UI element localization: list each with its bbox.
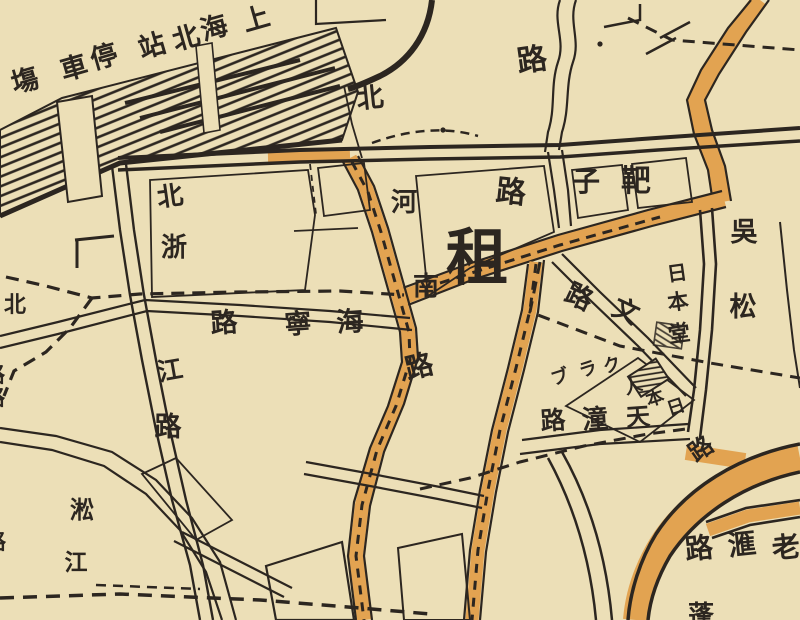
north-henan-char: 南 — [413, 272, 439, 302]
broadway-road-char: 路 — [683, 531, 715, 567]
songjiang-char: 淞 — [70, 495, 94, 524]
concession-label: 租 — [446, 221, 508, 294]
tiantong-road-char: 潼 — [581, 403, 609, 436]
tiantong-road-char: 天 — [625, 401, 651, 432]
bazi-road-char: 子 — [572, 165, 600, 198]
haining-road-char: 寧 — [283, 307, 312, 341]
north-henan-char: 河 — [391, 188, 417, 218]
north-zhejiang-char: 路 — [155, 411, 183, 443]
top-road-label: 路 — [515, 41, 551, 80]
wusong-road-char: 吳 — [731, 217, 759, 248]
north-henan-char: 北 — [355, 82, 385, 116]
edge-north-label: 北 — [4, 292, 26, 318]
broadway-road-char: 滙 — [726, 527, 757, 563]
haining-road-char: 路 — [209, 306, 239, 340]
nihon-hall-char: 日 — [665, 260, 688, 287]
north-zhejiang-char: 江 — [155, 354, 185, 387]
bazi-road-char: 靶 — [621, 164, 651, 199]
historical-shanghai-map: 塲 車 停 站 北 海 上 路 北 河 南 路 路 子 靶 租 路 寧 海 北 … — [0, 0, 800, 620]
tiantong-road-char: 路 — [539, 405, 567, 436]
edge-partial-label: 路 — [0, 529, 7, 555]
broadway-road-char: 老 — [770, 530, 800, 566]
north-zhejiang-char: 浙 — [161, 233, 187, 263]
bazi-road-char: 路 — [494, 174, 528, 212]
wusong-road-char: 松 — [730, 292, 757, 323]
north-zhejiang-char: 北 — [155, 180, 185, 213]
haining-road-char: 海 — [335, 306, 364, 339]
nihon-hall-char: 堂 — [666, 320, 691, 349]
map-canvas: 塲 車 停 站 北 海 上 路 北 河 南 路 路 子 靶 租 路 寧 海 北 … — [0, 0, 800, 620]
nihon-hall-char: 本 — [666, 288, 690, 316]
map-dot — [440, 127, 445, 132]
songjiang-char: 江 — [65, 549, 88, 576]
edge-partial-bottom-label: 蓬 — [688, 601, 715, 620]
